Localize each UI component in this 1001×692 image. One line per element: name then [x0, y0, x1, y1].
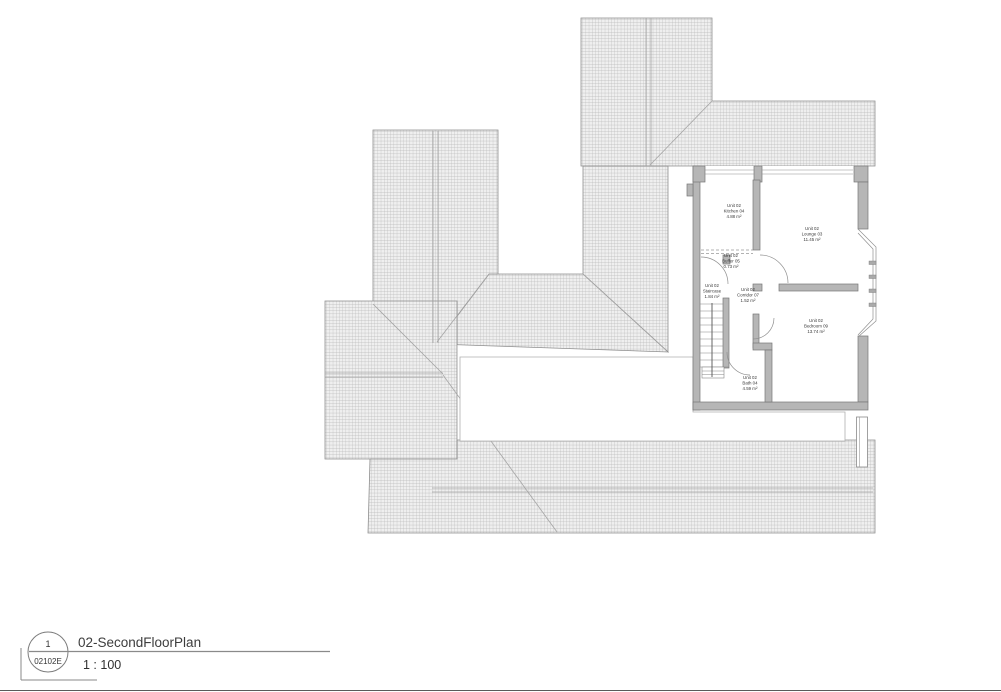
chimney — [857, 417, 868, 467]
stair-lower-flight — [702, 367, 724, 378]
wall-stair-east — [723, 298, 729, 368]
wall-bath-north — [753, 343, 772, 350]
wall-bottom — [693, 402, 868, 410]
detail-number: 1 — [45, 639, 50, 649]
room-label-buffer-05: Unit 02Buffer 050.73 m² — [722, 253, 740, 269]
wall-kitchen-lounge — [753, 180, 760, 250]
view-title: 02-SecondFloorPlan — [78, 635, 201, 650]
roof-top-wing — [581, 18, 875, 166]
wall-left — [693, 166, 700, 410]
sheet-number: 02102E — [34, 657, 62, 666]
wall-lounge-south — [779, 284, 858, 291]
wall-top-seg2 — [754, 166, 762, 182]
roof-lower-left-wing — [325, 301, 457, 459]
floor-plan-drawing: Unit 02Kitchen 044.88 m²Unit 02Lounge 03… — [0, 0, 1001, 692]
wall-left-bump — [687, 184, 693, 196]
wall-right-lower — [858, 336, 868, 402]
drawing-sheet: Unit 02Kitchen 044.88 m²Unit 02Lounge 03… — [0, 0, 1001, 692]
wall-right-upper — [858, 182, 868, 229]
bay-window-mullions — [869, 261, 876, 307]
room-label-bath-04: Unit 02Bath 044.59 m² — [742, 375, 758, 391]
view-scale: 1 : 100 — [83, 658, 121, 672]
wall-top-seg3 — [854, 166, 868, 182]
wall-top-seg1 — [693, 166, 705, 182]
view-title-block: 1 02102E 02-SecondFloorPlan 1 : 100 — [0, 632, 1001, 691]
wall-bath-bedroom — [765, 350, 772, 402]
room-label-staircase: Unit 02Staircase1.84 m² — [703, 283, 722, 299]
